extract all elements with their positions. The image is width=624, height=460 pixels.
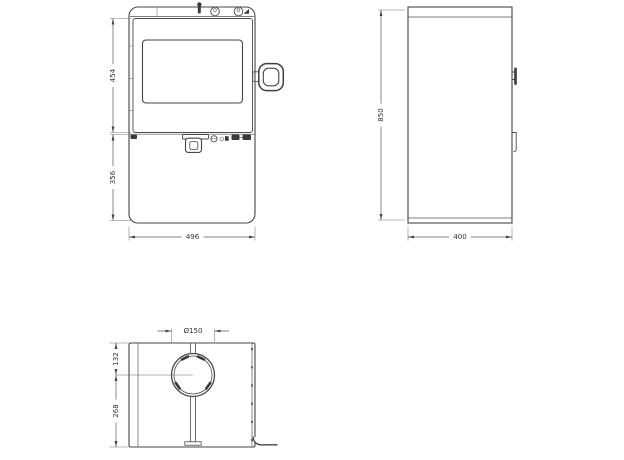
door-glass-window (143, 40, 243, 103)
dim-front-door-height: 454 (109, 19, 132, 133)
top-handle-profile (253, 437, 277, 445)
dim-label-base-height: 356 (109, 170, 117, 184)
dim-label-flue-offset-back: 132 (112, 352, 120, 365)
dim-side-height: 850 (377, 10, 406, 220)
technical-drawing-canvas: 454 356 496 (0, 0, 624, 460)
side-view: 850 400 (377, 7, 517, 242)
damper-pin-head (197, 2, 201, 6)
dim-label-flue-diameter: Ø150 (184, 327, 203, 335)
front-view: 454 356 496 (109, 2, 284, 242)
stove-three-view-drawing: 454 356 496 (0, 0, 624, 460)
latch-catch-outer (186, 138, 202, 152)
side-body-outline (408, 7, 512, 223)
dim-flue-offset-back: 132 (110, 343, 128, 375)
dim-side-depth: 400 (408, 227, 512, 243)
side-latch-hook (512, 133, 516, 152)
dim-label-width: 496 (186, 233, 200, 241)
dim-label-door-height: 454 (109, 68, 117, 82)
dim-label-flue-offset-front: 268 (112, 404, 120, 417)
hinge-block-right (243, 135, 252, 140)
seam-end-cap (131, 135, 138, 139)
dim-flue-diameter: Ø150 (158, 327, 230, 344)
dim-flue-offset-front: 268 (110, 375, 128, 447)
dim-label-height: 850 (377, 108, 385, 121)
top-view: Ø150 132 268 (110, 327, 278, 448)
dim-front-base-height: 356 (109, 135, 132, 221)
side-handle-bar (514, 68, 517, 86)
dim-label-depth: 400 (453, 233, 466, 241)
door-handle-inner (263, 68, 279, 86)
hinge-block-left (232, 135, 240, 140)
latch-spacer (225, 136, 229, 141)
dim-front-width: 496 (129, 227, 255, 243)
